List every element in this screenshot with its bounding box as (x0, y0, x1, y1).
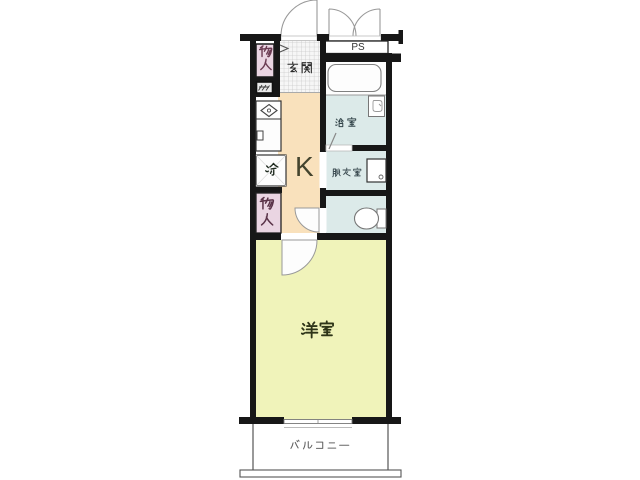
svg-text:K: K (295, 151, 314, 182)
svg-text:PS: PS (351, 42, 365, 53)
